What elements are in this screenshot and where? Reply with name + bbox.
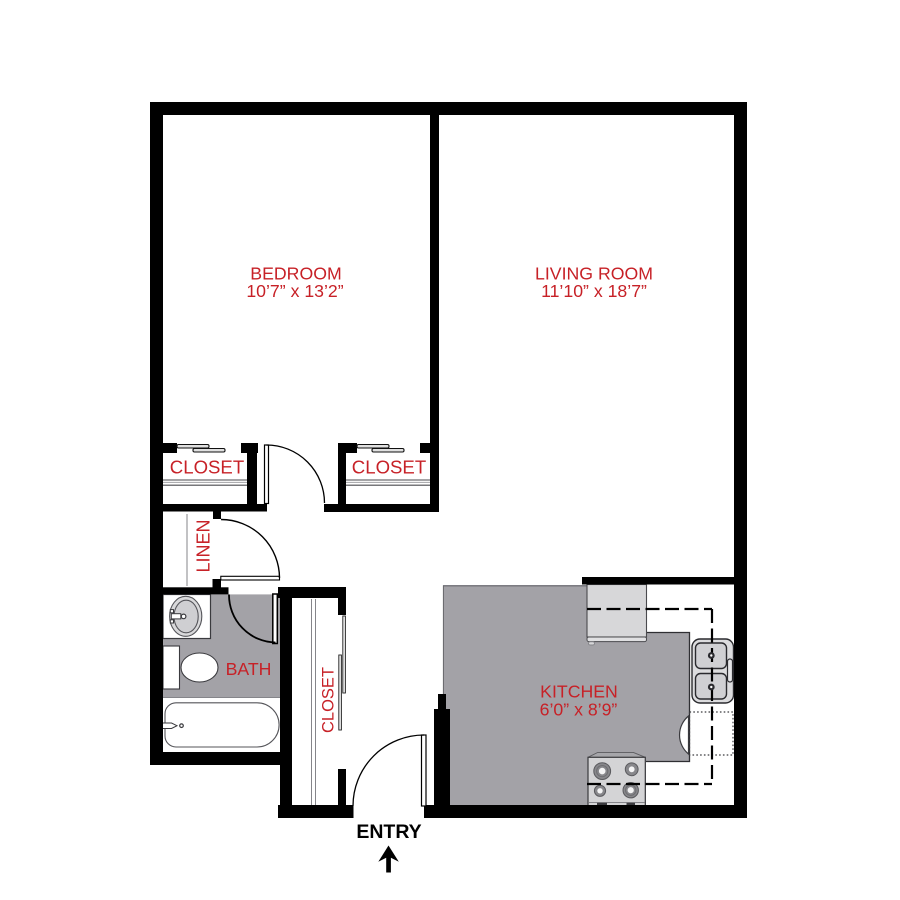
svg-text:CLOSET: CLOSET [352,457,426,478]
svg-text:ENTRY: ENTRY [356,821,421,843]
svg-text:10’7” x 13’2”: 10’7” x 13’2” [246,281,343,301]
svg-text:KITCHEN: KITCHEN [540,681,618,701]
svg-text:BATH: BATH [226,659,272,679]
svg-text:LINEN: LINEN [194,519,214,572]
svg-text:CLOSET: CLOSET [320,667,338,733]
svg-text:11’10” x 18’7”: 11’10” x 18’7” [541,281,647,301]
svg-text:6’0” x 8’9”: 6’0” x 8’9” [540,699,618,719]
svg-text:CLOSET: CLOSET [170,457,244,478]
